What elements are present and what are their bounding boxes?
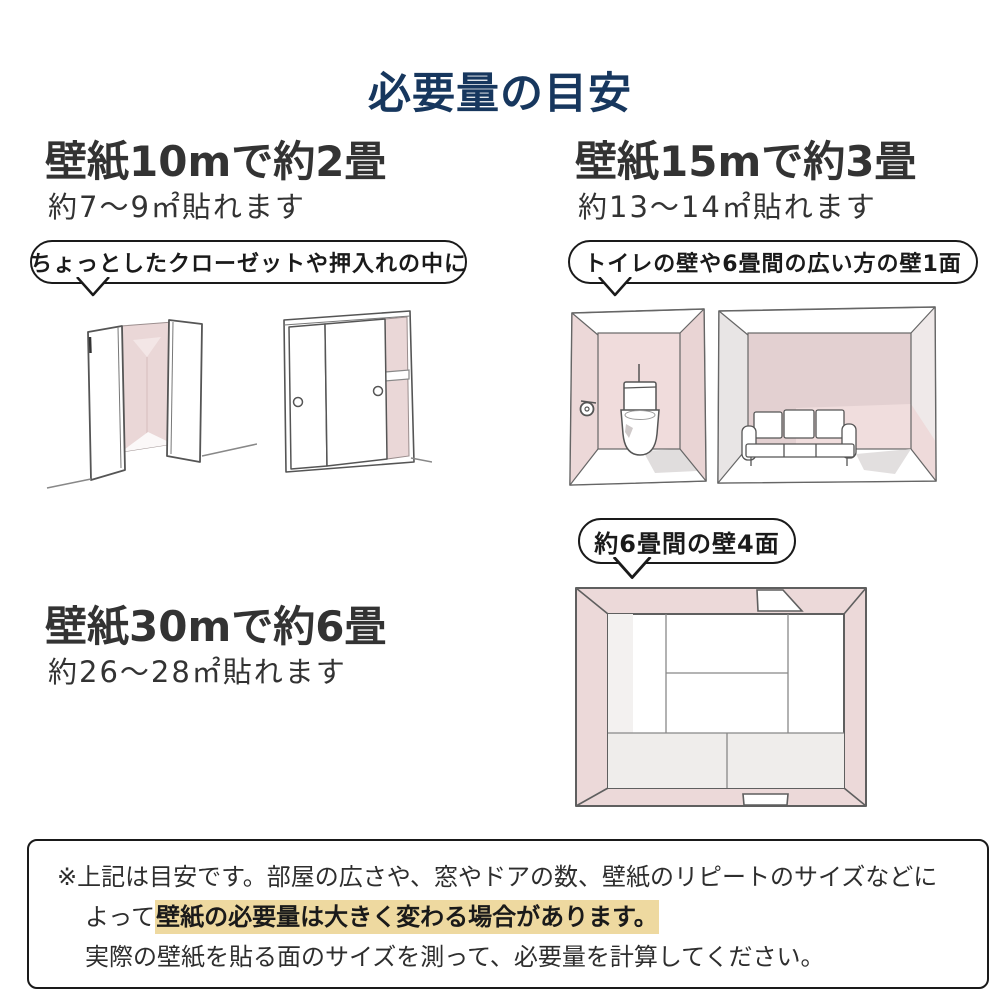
bubble-6mat-label: 約6畳間の壁4面 xyxy=(594,524,779,559)
sliding-closet-illustration xyxy=(276,306,432,486)
toilet-room-illustration xyxy=(563,302,713,492)
tatami-room-top-view-illustration xyxy=(572,584,870,810)
note-line-2-prefix: よって xyxy=(85,903,155,931)
note-highlight: 壁紙の必要量は大きく変わる場合があります。 xyxy=(155,900,659,934)
heading-10m: 壁紙10mで約2畳 xyxy=(45,128,386,189)
note-box: ※上記は目安です。部屋の広さや、窓やドアの数、壁紙のリピートのサイズなどに よっ… xyxy=(27,839,989,989)
bubble-tail-down-icon xyxy=(74,277,110,298)
open-closet-illustration xyxy=(45,312,257,494)
bubble-tail-down-icon xyxy=(596,277,632,298)
note-line-1: ※上記は目安です。部屋の広さや、窓やドアの数、壁紙のリピートのサイズなどに xyxy=(57,857,967,897)
bubble-10m: ちょっとしたクローゼットや押入れの中に xyxy=(30,240,467,284)
page-title: 必要量の目安 xyxy=(0,59,1000,121)
bubble-15m-label: トイレの壁や6畳間の広い方の壁1面 xyxy=(584,246,962,278)
subtitle-30m: 約26〜28㎡貼れます xyxy=(48,649,347,691)
subtitle-15m: 約13〜14㎡貼れます xyxy=(578,184,877,226)
living-room-illustration xyxy=(714,302,940,488)
heading-30m: 壁紙30mで約6畳 xyxy=(45,593,386,654)
note-line-2: よって壁紙の必要量は大きく変わる場合があります。 xyxy=(57,897,967,937)
note-line-3: 実際の壁紙を貼る面のサイズを測って、必要量を計算してください。 xyxy=(57,937,967,977)
heading-15m: 壁紙15mで約3畳 xyxy=(575,128,916,189)
bubble-6mat: 約6畳間の壁4面 xyxy=(578,518,796,564)
bubble-10m-label: ちょっとしたクローゼットや押入れの中に xyxy=(30,246,467,278)
wallpaper-amount-infographic: 必要量の目安 壁紙10mで約2畳 約7〜9㎡貼れます ちょっとしたクローゼットや… xyxy=(0,0,1000,1000)
subtitle-10m: 約7〜9㎡貼れます xyxy=(48,184,306,226)
bubble-tail-down-icon xyxy=(610,557,652,581)
bubble-15m: トイレの壁や6畳間の広い方の壁1面 xyxy=(568,240,978,284)
